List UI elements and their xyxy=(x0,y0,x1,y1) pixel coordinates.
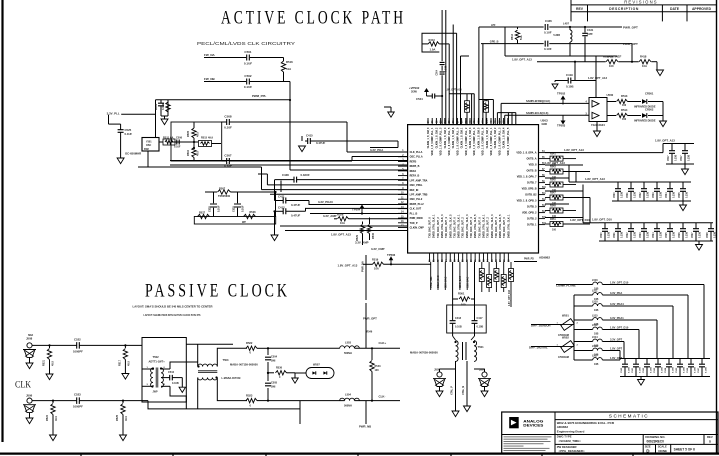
svg-text:51A: 51A xyxy=(520,35,523,40)
svg-text:NONE: NONE xyxy=(658,449,667,453)
svg-text:C529: C529 xyxy=(233,206,236,212)
svg-text:1.8V_OPT_A13: 1.8V_OPT_A13 xyxy=(331,233,351,237)
svg-text:C528: C528 xyxy=(209,206,212,212)
svg-text:C418: C418 xyxy=(455,317,462,320)
svg-text:XTAL_SEL: XTAL_SEL xyxy=(430,276,433,288)
svg-text:T502: T502 xyxy=(153,355,160,359)
svg-text:0.1UF: 0.1UF xyxy=(242,205,245,212)
svg-text:74LVC2G04: 74LVC2G04 xyxy=(591,124,605,127)
svg-text:0.10B: 0.10B xyxy=(634,192,636,198)
svg-text:0.10B: 0.10B xyxy=(647,232,649,238)
svg-text:PWR_NB: PWR_NB xyxy=(359,425,371,429)
svg-text:R530: R530 xyxy=(372,232,375,239)
svg-text:SAMPLEFREQ(CLK): SAMPLEFREQ(CLK) xyxy=(526,100,550,103)
svg-text:TXD_DAC_OUT_0: TXD_DAC_OUT_0 xyxy=(478,217,481,238)
svg-text:R413: R413 xyxy=(429,38,436,42)
svg-text:C524: C524 xyxy=(652,232,655,238)
svg-text:560NH: 560NH xyxy=(344,352,352,355)
svg-text:1.0A: 1.0A xyxy=(430,47,436,51)
svg-text:DVDD_XTAL_CLK_1: DVDD_XTAL_CLK_1 xyxy=(482,214,485,238)
svg-text:0.10B: 0.10B xyxy=(661,367,663,373)
svg-text:LAYOUT: SMA'S SHOULD BE 540 MI: LAYOUT: SMA'S SHOULD BE 540 MILS CENTER … xyxy=(133,305,214,309)
svg-text:4700OHM: 4700OHM xyxy=(558,356,569,359)
svg-text:+VPS02: +VPS02 xyxy=(409,86,420,90)
svg-text:R525: R525 xyxy=(116,414,119,421)
svg-text:3.3V_CMP: 3.3V_CMP xyxy=(371,247,385,251)
svg-text:R543: R543 xyxy=(550,166,556,169)
svg-text:100: 100 xyxy=(461,303,466,307)
svg-text:J508: J508 xyxy=(26,337,33,341)
svg-text:DVDD_XTAL_CLK_5: DVDD_XTAL_CLK_5 xyxy=(449,214,452,238)
svg-text:Engineering Board: Engineering Board xyxy=(557,429,585,433)
svg-text:APPROVED: APPROVED xyxy=(692,7,712,11)
svg-text:0.10B: 0.10B xyxy=(672,367,674,373)
svg-text:TXD_DAC_OUT_4: TXD_DAC_OUT_4 xyxy=(495,217,498,238)
svg-text:0.33UF: 0.33UF xyxy=(301,173,310,177)
svg-text:DVDD_XTAL_CLK_5: DVDD_XTAL_CLK_5 xyxy=(499,214,502,238)
svg-text:0.10B: 0.10B xyxy=(660,192,662,198)
svg-text:R528: R528 xyxy=(250,211,257,214)
svg-text:R504: R504 xyxy=(187,149,190,156)
svg-text:CLK+: CLK+ xyxy=(379,341,387,345)
svg-text:AD9862: AD9862 xyxy=(539,256,550,260)
svg-text:CLK_PLLA: CLK_PLLA xyxy=(410,151,423,154)
svg-text:R545: R545 xyxy=(550,179,556,182)
svg-text:L517: L517 xyxy=(592,355,598,358)
svg-text:CR502: CR502 xyxy=(645,108,654,112)
svg-text:3.3V_PKA: 3.3V_PKA xyxy=(610,291,622,295)
svg-text:U500: U500 xyxy=(607,93,614,97)
svg-text:C534: C534 xyxy=(665,192,668,198)
svg-text:R536: R536 xyxy=(276,367,283,370)
svg-text:PWR_PD: PWR_PD xyxy=(524,259,534,261)
svg-text:C561: C561 xyxy=(632,367,634,373)
svg-text:CLKIN_1_8_CM_6: CLKIN_1_8_CM_6 xyxy=(452,127,455,148)
svg-text:0.1UF: 0.1UF xyxy=(244,85,252,89)
svg-text:TXD_DAC_OUT_4: TXD_DAC_OUT_4 xyxy=(445,217,448,238)
svg-text:TXD_DAC_OUT_0: TXD_DAC_OUT_0 xyxy=(429,217,432,238)
svg-text:CR501: CR501 xyxy=(645,92,654,96)
svg-text:OUTB_B2: OUTB_B2 xyxy=(525,194,537,197)
svg-text:OSC: OSC xyxy=(146,144,151,147)
svg-text:R543: R543 xyxy=(375,365,382,368)
svg-text:W501: W501 xyxy=(562,314,569,318)
svg-text:3.3V_PKA4: 3.3V_PKA4 xyxy=(610,302,624,306)
svg-text:VDD_1_8_OPB_5: VDD_1_8_OPB_5 xyxy=(517,200,538,203)
svg-text:INFRARED DIODE: INFRARED DIODE xyxy=(634,120,656,123)
svg-text:0.10B: 0.10B xyxy=(675,155,677,161)
svg-text:R501: R501 xyxy=(458,292,465,296)
svg-text:VDD_1_8_COMP_PLL_1: VDD_1_8_COMP_PLL_1 xyxy=(490,127,493,156)
svg-text:10A: 10A xyxy=(374,267,379,271)
svg-text:51A: 51A xyxy=(286,67,291,71)
svg-text:C564: C564 xyxy=(664,367,667,373)
svg-text:1.8V_OPT_D10: 1.8V_OPT_D10 xyxy=(570,218,590,222)
svg-text:VDD_1_8_COMP_PLL_5: VDD_1_8_COMP_PLL_5 xyxy=(448,127,451,156)
svg-text:C533: C533 xyxy=(653,192,655,198)
svg-text:R524: R524 xyxy=(46,414,49,421)
svg-text:C508: C508 xyxy=(224,115,232,119)
svg-text:C520: C520 xyxy=(601,232,603,238)
svg-text:1.8V_OPT_A13: 1.8V_OPT_A13 xyxy=(512,58,532,62)
svg-text:OSC_PLL2: OSC_PLL2 xyxy=(410,198,423,201)
svg-text:R418: R418 xyxy=(640,55,647,59)
svg-text:1.8V_OPT_A13: 1.8V_OPT_A13 xyxy=(338,264,358,268)
svg-text:0.10B: 0.10B xyxy=(566,85,573,89)
svg-text:MABA-007059-000000: MABA-007059-000000 xyxy=(410,351,438,355)
svg-text:10A: 10A xyxy=(340,221,345,225)
svg-text:CSB_DAC: CSB_DAC xyxy=(466,277,469,288)
svg-text:TXD_DAC_OUT_2: TXD_DAC_OUT_2 xyxy=(487,217,490,238)
svg-text:R511: R511 xyxy=(163,136,170,140)
svg-text:C523: C523 xyxy=(640,232,642,238)
svg-text:XTAL_N: XTAL_N xyxy=(462,386,465,395)
svg-text:C522: C522 xyxy=(627,232,629,238)
svg-text:DESCRIPTION: DESCRIPTION xyxy=(609,7,639,11)
svg-text:PWR_NA: PWR_NA xyxy=(362,261,365,272)
svg-text:C525: C525 xyxy=(666,232,668,238)
svg-text:CLK_OUT: CLK_OUT xyxy=(410,208,422,211)
svg-text:REFA_B: REFA_B xyxy=(410,175,420,178)
svg-text:0.10B: 0.10B xyxy=(621,192,623,198)
svg-text:DEVICES: DEVICES xyxy=(523,424,544,428)
svg-text:R522: R522 xyxy=(246,341,253,345)
svg-text:06623REC0: 06623REC0 xyxy=(647,439,665,443)
svg-text:SCLK_DAC: SCLK_DAC xyxy=(437,275,440,288)
svg-text:49.9: 49.9 xyxy=(197,151,200,156)
svg-text:PWR_OPT: PWR_OPT xyxy=(623,26,638,30)
svg-text:R519: R519 xyxy=(372,258,379,262)
svg-text:1.8V_OPT_D10: 1.8V_OPT_D10 xyxy=(509,289,511,306)
svg-text:R527: R527 xyxy=(199,212,206,215)
svg-text:VDD_1_8_COMP_PLL_4: VDD_1_8_COMP_PLL_4 xyxy=(473,127,476,156)
svg-text:0.10B: 0.10B xyxy=(172,382,179,385)
svg-text:0.1UF: 0.1UF xyxy=(244,62,252,66)
svg-text:0.10B: 0.10B xyxy=(628,367,630,373)
svg-text:C505: C505 xyxy=(271,382,278,385)
svg-text:DVDD_XTAL_CLK_3: DVDD_XTAL_CLK_3 xyxy=(466,214,469,238)
svg-text:TXD_DAC_OUT_0: TXD_DAC_OUT_0 xyxy=(503,217,506,238)
svg-text:1.8V_OPT_A13: 1.8V_OPT_A13 xyxy=(564,148,584,152)
svg-text:CLKIN_1_8_CM_4: CLKIN_1_8_CM_4 xyxy=(444,127,447,148)
svg-text:R505: R505 xyxy=(187,130,190,137)
svg-text:R503: R503 xyxy=(154,103,158,110)
svg-text:C501: C501 xyxy=(244,50,252,54)
svg-text:FW_NB: FW_NB xyxy=(204,77,215,81)
svg-text:10B: 10B xyxy=(594,309,599,312)
svg-text:TR505600: TR505600 xyxy=(218,194,231,198)
svg-text:C522: C522 xyxy=(74,338,81,342)
svg-text:VDD_1_8_COMP_PLL_1: VDD_1_8_COMP_PLL_1 xyxy=(431,127,434,156)
svg-text:0A: 0A xyxy=(170,136,173,140)
svg-text:10A: 10A xyxy=(642,64,647,68)
svg-text:C547: C547 xyxy=(667,155,670,161)
svg-text:C523: C523 xyxy=(74,393,81,397)
svg-text:CLK-: CLK- xyxy=(379,395,386,399)
svg-text:MABA-007159-000000: MABA-007159-000000 xyxy=(230,363,258,367)
svg-text:OUTB_B: OUTB_B xyxy=(526,170,536,173)
svg-text:ACTIVE CLOCK PATH: ACTIVE CLOCK PATH xyxy=(221,9,406,29)
svg-text:REV: REV xyxy=(576,7,584,11)
svg-text:C532: C532 xyxy=(640,192,642,198)
svg-text:0.10B: 0.10B xyxy=(621,232,623,238)
svg-text:1.8V_OPT_A13: 1.8V_OPT_A13 xyxy=(585,177,605,181)
svg-text:C535: C535 xyxy=(679,192,681,198)
svg-text:L504: L504 xyxy=(345,393,351,397)
svg-text:69: 69 xyxy=(508,259,510,262)
svg-text:0.10B: 0.10B xyxy=(688,155,690,161)
svg-text:DVDD_XTAL_CLK_1: DVDD_XTAL_CLK_1 xyxy=(507,214,510,238)
svg-text:0.10F: 0.10F xyxy=(224,126,232,130)
svg-text:REV: REV xyxy=(707,435,713,439)
svg-text:TXD_P: TXD_P xyxy=(410,222,418,225)
svg-text:R514: R514 xyxy=(621,108,628,112)
svg-text:0.10B: 0.10B xyxy=(650,367,652,373)
svg-text:L512: L512 xyxy=(592,324,598,327)
svg-text:L516: L516 xyxy=(592,279,598,282)
svg-text:0.10B: 0.10B xyxy=(673,232,675,238)
svg-text:TXD_DAC_OUT_2: TXD_DAC_OUT_2 xyxy=(462,217,465,238)
svg-text:CLKIN_1_8_CM_1: CLKIN_1_8_CM_1 xyxy=(461,127,464,148)
svg-text:CLKIN_1_8_CM_2: CLKIN_1_8_CM_2 xyxy=(494,127,497,148)
svg-text:VDD_1_8_COMP_PLL_3: VDD_1_8_COMP_PLL_3 xyxy=(498,127,501,156)
svg-text:VDD_1_8_COMP_PLL_0: VDD_1_8_COMP_PLL_0 xyxy=(456,127,459,156)
svg-text:100: 100 xyxy=(622,118,627,121)
svg-text:CLKIN_1_8_CM_4: CLKIN_1_8_CM_4 xyxy=(503,127,506,148)
svg-text:0.10B: 0.10B xyxy=(683,367,685,373)
svg-text:C527: C527 xyxy=(692,232,694,238)
svg-text:OSC_PPAL: OSC_PPAL xyxy=(410,184,423,187)
svg-text:5.36B: 5.36B xyxy=(553,34,560,37)
svg-text:L.MABA-007159: L.MABA-007159 xyxy=(222,377,242,380)
svg-text:3.3V_AMP: 3.3V_AMP xyxy=(323,214,337,218)
svg-text:49.9: 49.9 xyxy=(197,132,200,137)
svg-text:WP: WP xyxy=(242,221,246,224)
svg-text:100: 100 xyxy=(375,369,380,372)
svg-text:VDD_1_8_OPA_A: VDD_1_8_OPA_A xyxy=(516,152,536,155)
svg-text:L514: L514 xyxy=(592,336,598,339)
svg-text:C506: C506 xyxy=(176,137,183,140)
svg-text:OSC_PLLA: OSC_PLLA xyxy=(410,156,423,159)
svg-text:C411: C411 xyxy=(278,195,285,199)
svg-text:3.3V_PKA: 3.3V_PKA xyxy=(370,148,383,152)
svg-text:0.10B: 0.10B xyxy=(639,367,641,373)
svg-text:TP504: TP504 xyxy=(352,208,361,212)
svg-text:TXD_DAC_OUT_2: TXD_DAC_OUT_2 xyxy=(437,217,440,238)
svg-text:VDD_8: VDD_8 xyxy=(529,164,538,167)
svg-text:REFB_B: REFB_B xyxy=(410,165,420,168)
svg-text:C412: C412 xyxy=(278,205,285,209)
svg-text:DVDD_XTAL_CLK_3: DVDD_XTAL_CLK_3 xyxy=(491,214,494,238)
svg-text:TXD_DAC_OUT_4: TXD_DAC_OUT_4 xyxy=(470,217,473,238)
svg-text:W502: W502 xyxy=(562,336,569,340)
svg-text:TXD_DAC_OUT_0: TXD_DAC_OUT_0 xyxy=(453,217,456,238)
svg-text:LAYOUT: SHARE PADS WITH ACTIVE: LAYOUT: SHARE PADS WITH ACTIVE CLOCK PAT… xyxy=(144,313,201,317)
svg-text:49.9: 49.9 xyxy=(55,416,58,421)
svg-text:R510: R510 xyxy=(511,33,514,40)
svg-text:3.3V_PKA0: 3.3V_PKA0 xyxy=(318,200,333,204)
svg-text:C504: C504 xyxy=(436,69,439,75)
svg-text:VDD_1_8_COMP_PLL_6: VDD_1_8_COMP_PLL_6 xyxy=(482,127,485,156)
svg-text:100: 100 xyxy=(609,64,614,68)
svg-text:1.8V_OPT_A13: 1.8V_OPT_A13 xyxy=(588,76,607,80)
svg-text:C563: C563 xyxy=(654,367,656,373)
svg-text:DVDD_XTAL_CLK_3: DVDD_XTAL_CLK_3 xyxy=(441,214,444,238)
svg-text:C417: C417 xyxy=(477,317,484,320)
svg-text:0.10B: 0.10B xyxy=(686,192,688,198)
svg-text:C516: C516 xyxy=(168,371,175,374)
svg-text:C504: C504 xyxy=(271,356,278,359)
svg-text:R517: R517 xyxy=(118,359,121,366)
svg-text:R526: R526 xyxy=(337,212,344,216)
svg-text:OUTB_1: OUTB_1 xyxy=(527,224,537,227)
svg-text:3.3V_OPT: 3.3V_OPT xyxy=(610,337,623,341)
svg-text:0.10B: 0.10B xyxy=(705,367,707,373)
svg-text:R515: R515 xyxy=(201,137,208,140)
svg-text:TP503: TP503 xyxy=(557,124,566,128)
svg-text:VDD_OPB_2: VDD_OPB_2 xyxy=(522,212,537,215)
svg-text:PWR_DWN: PWR_DWN xyxy=(410,217,423,220)
svg-text:3.3V_AMP: 3.3V_AMP xyxy=(355,241,369,245)
svg-text:SDO_DAC: SDO_DAC xyxy=(444,276,447,288)
svg-text:C562: C562 xyxy=(643,367,645,373)
svg-text:R523: R523 xyxy=(246,394,253,398)
svg-text:J506: J506 xyxy=(26,394,33,398)
svg-text:OUTB_7: OUTB_7 xyxy=(527,182,537,185)
svg-text:0.10B: 0.10B xyxy=(699,232,701,238)
svg-text:0.10F: 0.10F xyxy=(174,146,181,149)
svg-text:OUTB_5: OUTB_5 xyxy=(527,206,537,209)
svg-text:CLK: CLK xyxy=(15,381,31,391)
svg-text:0.1UF: 0.1UF xyxy=(218,205,221,212)
svg-text:DNI: DNI xyxy=(271,386,276,389)
svg-text:TP506: TP506 xyxy=(387,253,396,257)
svg-text:VDD_OPB_B: VDD_OPB_B xyxy=(522,188,537,191)
svg-text:<PPG_DESIGNER>: <PPG_DESIGNER> xyxy=(559,449,585,453)
svg-text:0.10B: 0.10B xyxy=(660,232,662,238)
svg-text:DATE: DATE xyxy=(670,7,680,11)
svg-text:VDD_1_8_OPA_7: VDD_1_8_OPA_7 xyxy=(517,176,537,179)
svg-text:0.10B: 0.10B xyxy=(714,232,716,238)
svg-text:C526: C526 xyxy=(679,232,681,238)
svg-text:R546: R546 xyxy=(367,331,373,334)
svg-text:<SCHEM_TIME>: <SCHEM_TIME> xyxy=(559,439,582,443)
svg-text:R507: R507 xyxy=(219,186,226,190)
svg-text:GPD_B: GPD_B xyxy=(490,41,499,44)
svg-text:R521: R521 xyxy=(43,359,46,366)
svg-text:49.9: 49.9 xyxy=(52,361,55,366)
svg-text:VDD_1_8_COMP_PLL_5: VDD_1_8_COMP_PLL_5 xyxy=(507,127,510,156)
svg-text:C567: C567 xyxy=(698,367,700,373)
svg-text:FW_NA: FW_NA xyxy=(204,53,215,57)
svg-text:SDIO_DAC: SDIO_DAC xyxy=(459,276,462,288)
svg-text:OUTB_2: OUTB_2 xyxy=(527,218,537,221)
svg-text:R551: R551 xyxy=(550,218,556,221)
svg-text:100: 100 xyxy=(552,229,557,232)
svg-text:W507: W507 xyxy=(313,363,320,367)
svg-text:0.1UF: 0.1UF xyxy=(125,132,133,136)
svg-text:0.47UF: 0.47UF xyxy=(291,214,300,218)
svg-text:0.47UF: 0.47UF xyxy=(291,203,300,207)
svg-text:REVISIONS: REVISIONS xyxy=(624,0,658,4)
svg-text:C426: C426 xyxy=(545,19,552,23)
svg-text:C428: C428 xyxy=(282,173,289,177)
svg-text:PWM_PPL: PWM_PPL xyxy=(252,94,267,98)
svg-text:0.10B: 0.10B xyxy=(673,192,675,198)
svg-text:1.8V_OPT_A13: 1.8V_OPT_A13 xyxy=(545,161,565,165)
svg-text:0.47UF: 0.47UF xyxy=(316,141,325,145)
svg-text:R549: R549 xyxy=(550,205,556,208)
svg-text:C547: C547 xyxy=(680,155,683,161)
svg-text:C521: C521 xyxy=(614,232,616,238)
svg-text:0.10B: 0.10B xyxy=(694,367,696,373)
svg-text:11PF: 11PF xyxy=(587,33,593,36)
svg-text:C531: C531 xyxy=(627,192,629,198)
svg-text:1000PF: 1000PF xyxy=(73,405,83,409)
svg-text:C528: C528 xyxy=(707,232,709,238)
svg-text:REF_IN: REF_IN xyxy=(410,189,419,192)
svg-text:R516: R516 xyxy=(286,60,293,64)
svg-text:XTAL_P: XTAL_P xyxy=(451,386,454,395)
svg-text:PWR_OPT: PWR_OPT xyxy=(623,42,638,46)
svg-text:LPF_AMP_TRA: LPF_AMP_TRA xyxy=(410,179,428,182)
svg-text:DVDD_XTAL_CLK_1: DVDD_XTAL_CLK_1 xyxy=(458,214,461,238)
svg-text:C431: C431 xyxy=(587,28,594,32)
svg-text:C566: C566 xyxy=(687,367,689,373)
svg-text:C502: C502 xyxy=(244,74,252,78)
svg-text:0.1UF: 0.1UF xyxy=(544,47,552,51)
svg-text:L511: L511 xyxy=(592,290,598,293)
svg-text:C524: C524 xyxy=(416,97,423,101)
svg-text:JWP: JWP xyxy=(153,392,158,394)
svg-text:65M: 65M xyxy=(144,148,149,151)
svg-text:L513: L513 xyxy=(592,345,598,348)
svg-text:TP502: TP502 xyxy=(557,92,566,96)
svg-text:0.10B: 0.10B xyxy=(608,232,610,238)
svg-text:U503: U503 xyxy=(541,119,549,123)
svg-text:R417: R417 xyxy=(607,55,614,59)
svg-text:CLKIN_1_8_CM_5: CLKIN_1_8_CM_5 xyxy=(477,127,480,148)
svg-text:C507: C507 xyxy=(224,154,232,158)
svg-text:CLKIN_1_8_CM_2: CLKIN_1_8_CM_2 xyxy=(435,127,438,148)
svg-text:C530: C530 xyxy=(614,192,616,198)
svg-text:T501: T501 xyxy=(478,345,485,349)
svg-text:0.10B: 0.10B xyxy=(634,232,636,238)
svg-text:REFB: REFB xyxy=(410,160,417,163)
svg-text:49.9: 49.9 xyxy=(128,361,131,366)
svg-text:1.8V_OPT: 1.8V_OPT xyxy=(610,356,623,360)
svg-text:PASSIVE CLOCK: PASSIVE CLOCK xyxy=(145,282,290,302)
svg-text:PWR_OPT: PWR_OPT xyxy=(363,317,377,321)
svg-text:1.8V_OPT_A13: 1.8V_OPT_A13 xyxy=(655,138,675,142)
svg-text:1000PF: 1000PF xyxy=(73,350,83,354)
svg-text:0.10B: 0.10B xyxy=(455,326,462,329)
svg-text:PECL/CML/LVDS CLK CIRCUITRY: PECL/CML/LVDS CLK CIRCUITRY xyxy=(197,41,295,46)
svg-text:OC-650MHR: OC-650MHR xyxy=(125,152,141,156)
svg-text:LPF_AMP_TRB: LPF_AMP_TRB xyxy=(410,193,428,196)
svg-text:49.9: 49.9 xyxy=(208,137,213,140)
svg-text:0.10B: 0.10B xyxy=(477,326,484,329)
svg-text:VDD_1_8_COMP_PLL_3: VDD_1_8_COMP_PLL_3 xyxy=(440,127,443,156)
svg-text:VDD_1_8_COMP_PLL_2: VDD_1_8_COMP_PLL_2 xyxy=(465,127,468,156)
svg-text:1.8V_OPT_A13: 1.8V_OPT_A13 xyxy=(445,88,462,91)
svg-text:L510: L510 xyxy=(592,301,598,304)
svg-text:L503: L503 xyxy=(345,341,351,345)
svg-text:R513: R513 xyxy=(621,94,628,98)
svg-text:OUTB_A: OUTB_A xyxy=(526,158,536,161)
svg-text:C560: C560 xyxy=(621,367,623,373)
svg-text:SAMPLECLK(CLK): SAMPLECLK(CLK) xyxy=(526,112,549,115)
